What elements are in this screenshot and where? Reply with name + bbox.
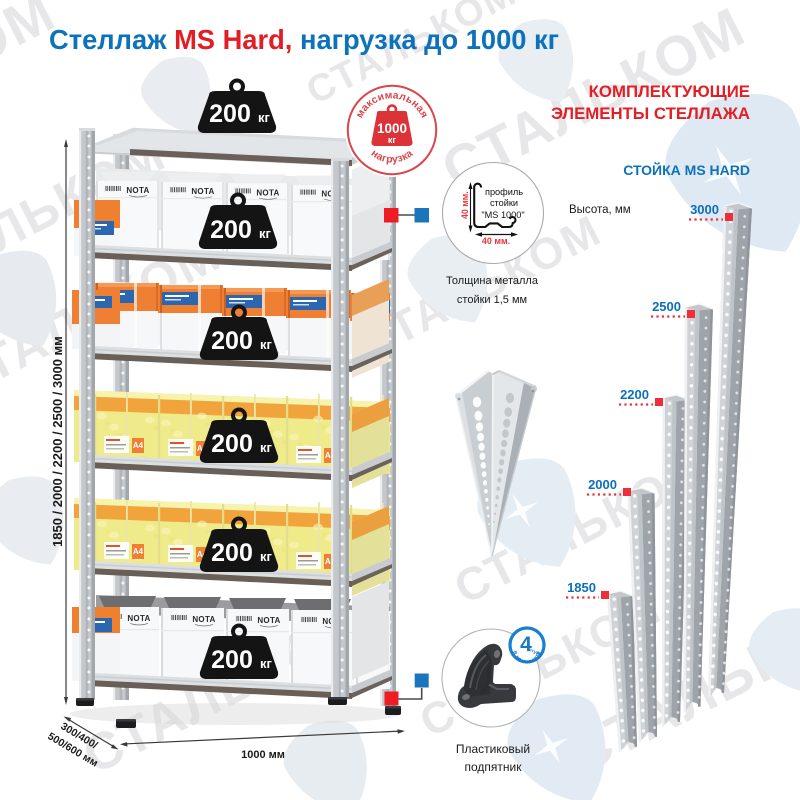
svg-text:Толщина металла: Толщина металла bbox=[446, 275, 539, 287]
svg-text:кг: кг bbox=[260, 656, 273, 671]
svg-text:профиль: профиль bbox=[485, 187, 523, 197]
svg-text:200: 200 bbox=[211, 646, 253, 674]
svg-text:A4: A4 bbox=[133, 441, 144, 450]
svg-text:ЭЛЕМЕНТЫ СТЕЛЛАЖА: ЭЛЕМЕНТЫ СТЕЛЛАЖА bbox=[551, 104, 750, 123]
svg-text:кг: кг bbox=[259, 226, 272, 241]
svg-text:200: 200 bbox=[211, 327, 253, 355]
svg-text:200: 200 bbox=[209, 100, 251, 128]
svg-text:1000 мм: 1000 мм bbox=[241, 749, 285, 761]
svg-text:200: 200 bbox=[211, 539, 253, 567]
svg-text:40 мм.: 40 мм. bbox=[482, 236, 510, 246]
svg-text:1850 / 2000 / 2200 / 2500 / 30: 1850 / 2000 / 2200 / 2500 / 3000 мм bbox=[50, 336, 65, 547]
svg-text:Пластиковый: Пластиковый bbox=[456, 742, 530, 756]
svg-text:"MS 1000": "MS 1000" bbox=[481, 210, 524, 220]
svg-text:КОМПЛЕКТУЮЩИЕ: КОМПЛЕКТУЮЩИЕ bbox=[589, 82, 750, 101]
svg-text:кг: кг bbox=[388, 135, 397, 145]
svg-text:NOTA: NOTA bbox=[191, 187, 214, 196]
svg-text:кг: кг bbox=[258, 110, 271, 125]
svg-text:2000: 2000 bbox=[588, 477, 617, 492]
svg-text:1000: 1000 bbox=[377, 121, 407, 136]
svg-text:СТОЙКА MS HARD: СТОЙКА MS HARD bbox=[623, 161, 750, 178]
svg-text:стойки 1,5 мм: стойки 1,5 мм bbox=[457, 294, 527, 306]
svg-text:NOTA: NOTA bbox=[127, 614, 150, 623]
svg-text:стойки: стойки bbox=[490, 198, 518, 208]
svg-text:200: 200 bbox=[211, 430, 253, 458]
svg-text:40 мм.: 40 мм. bbox=[460, 191, 470, 219]
svg-text:1850: 1850 bbox=[567, 580, 596, 595]
svg-text:NOTA: NOTA bbox=[256, 188, 279, 197]
svg-text:подпятник: подпятник bbox=[465, 760, 523, 774]
svg-text:A4: A4 bbox=[133, 547, 144, 556]
svg-text:3000: 3000 bbox=[690, 202, 719, 217]
svg-text:Стеллаж MS Hard, нагрузка до 1: Стеллаж MS Hard, нагрузка до 1000 кг bbox=[49, 24, 559, 55]
svg-text:кг: кг bbox=[260, 337, 273, 352]
svg-text:2500: 2500 bbox=[652, 299, 681, 314]
svg-text:Высота, мм: Высота, мм bbox=[569, 204, 631, 216]
svg-text:кг: кг bbox=[260, 549, 273, 564]
svg-text:4: 4 bbox=[520, 633, 532, 656]
svg-text:2200: 2200 bbox=[620, 387, 649, 402]
svg-text:NOTA: NOTA bbox=[257, 616, 280, 625]
svg-text:NOTA: NOTA bbox=[126, 186, 149, 195]
svg-text:кг: кг bbox=[260, 440, 273, 455]
svg-text:NOTA: NOTA bbox=[192, 615, 215, 624]
svg-text:200: 200 bbox=[210, 216, 252, 244]
